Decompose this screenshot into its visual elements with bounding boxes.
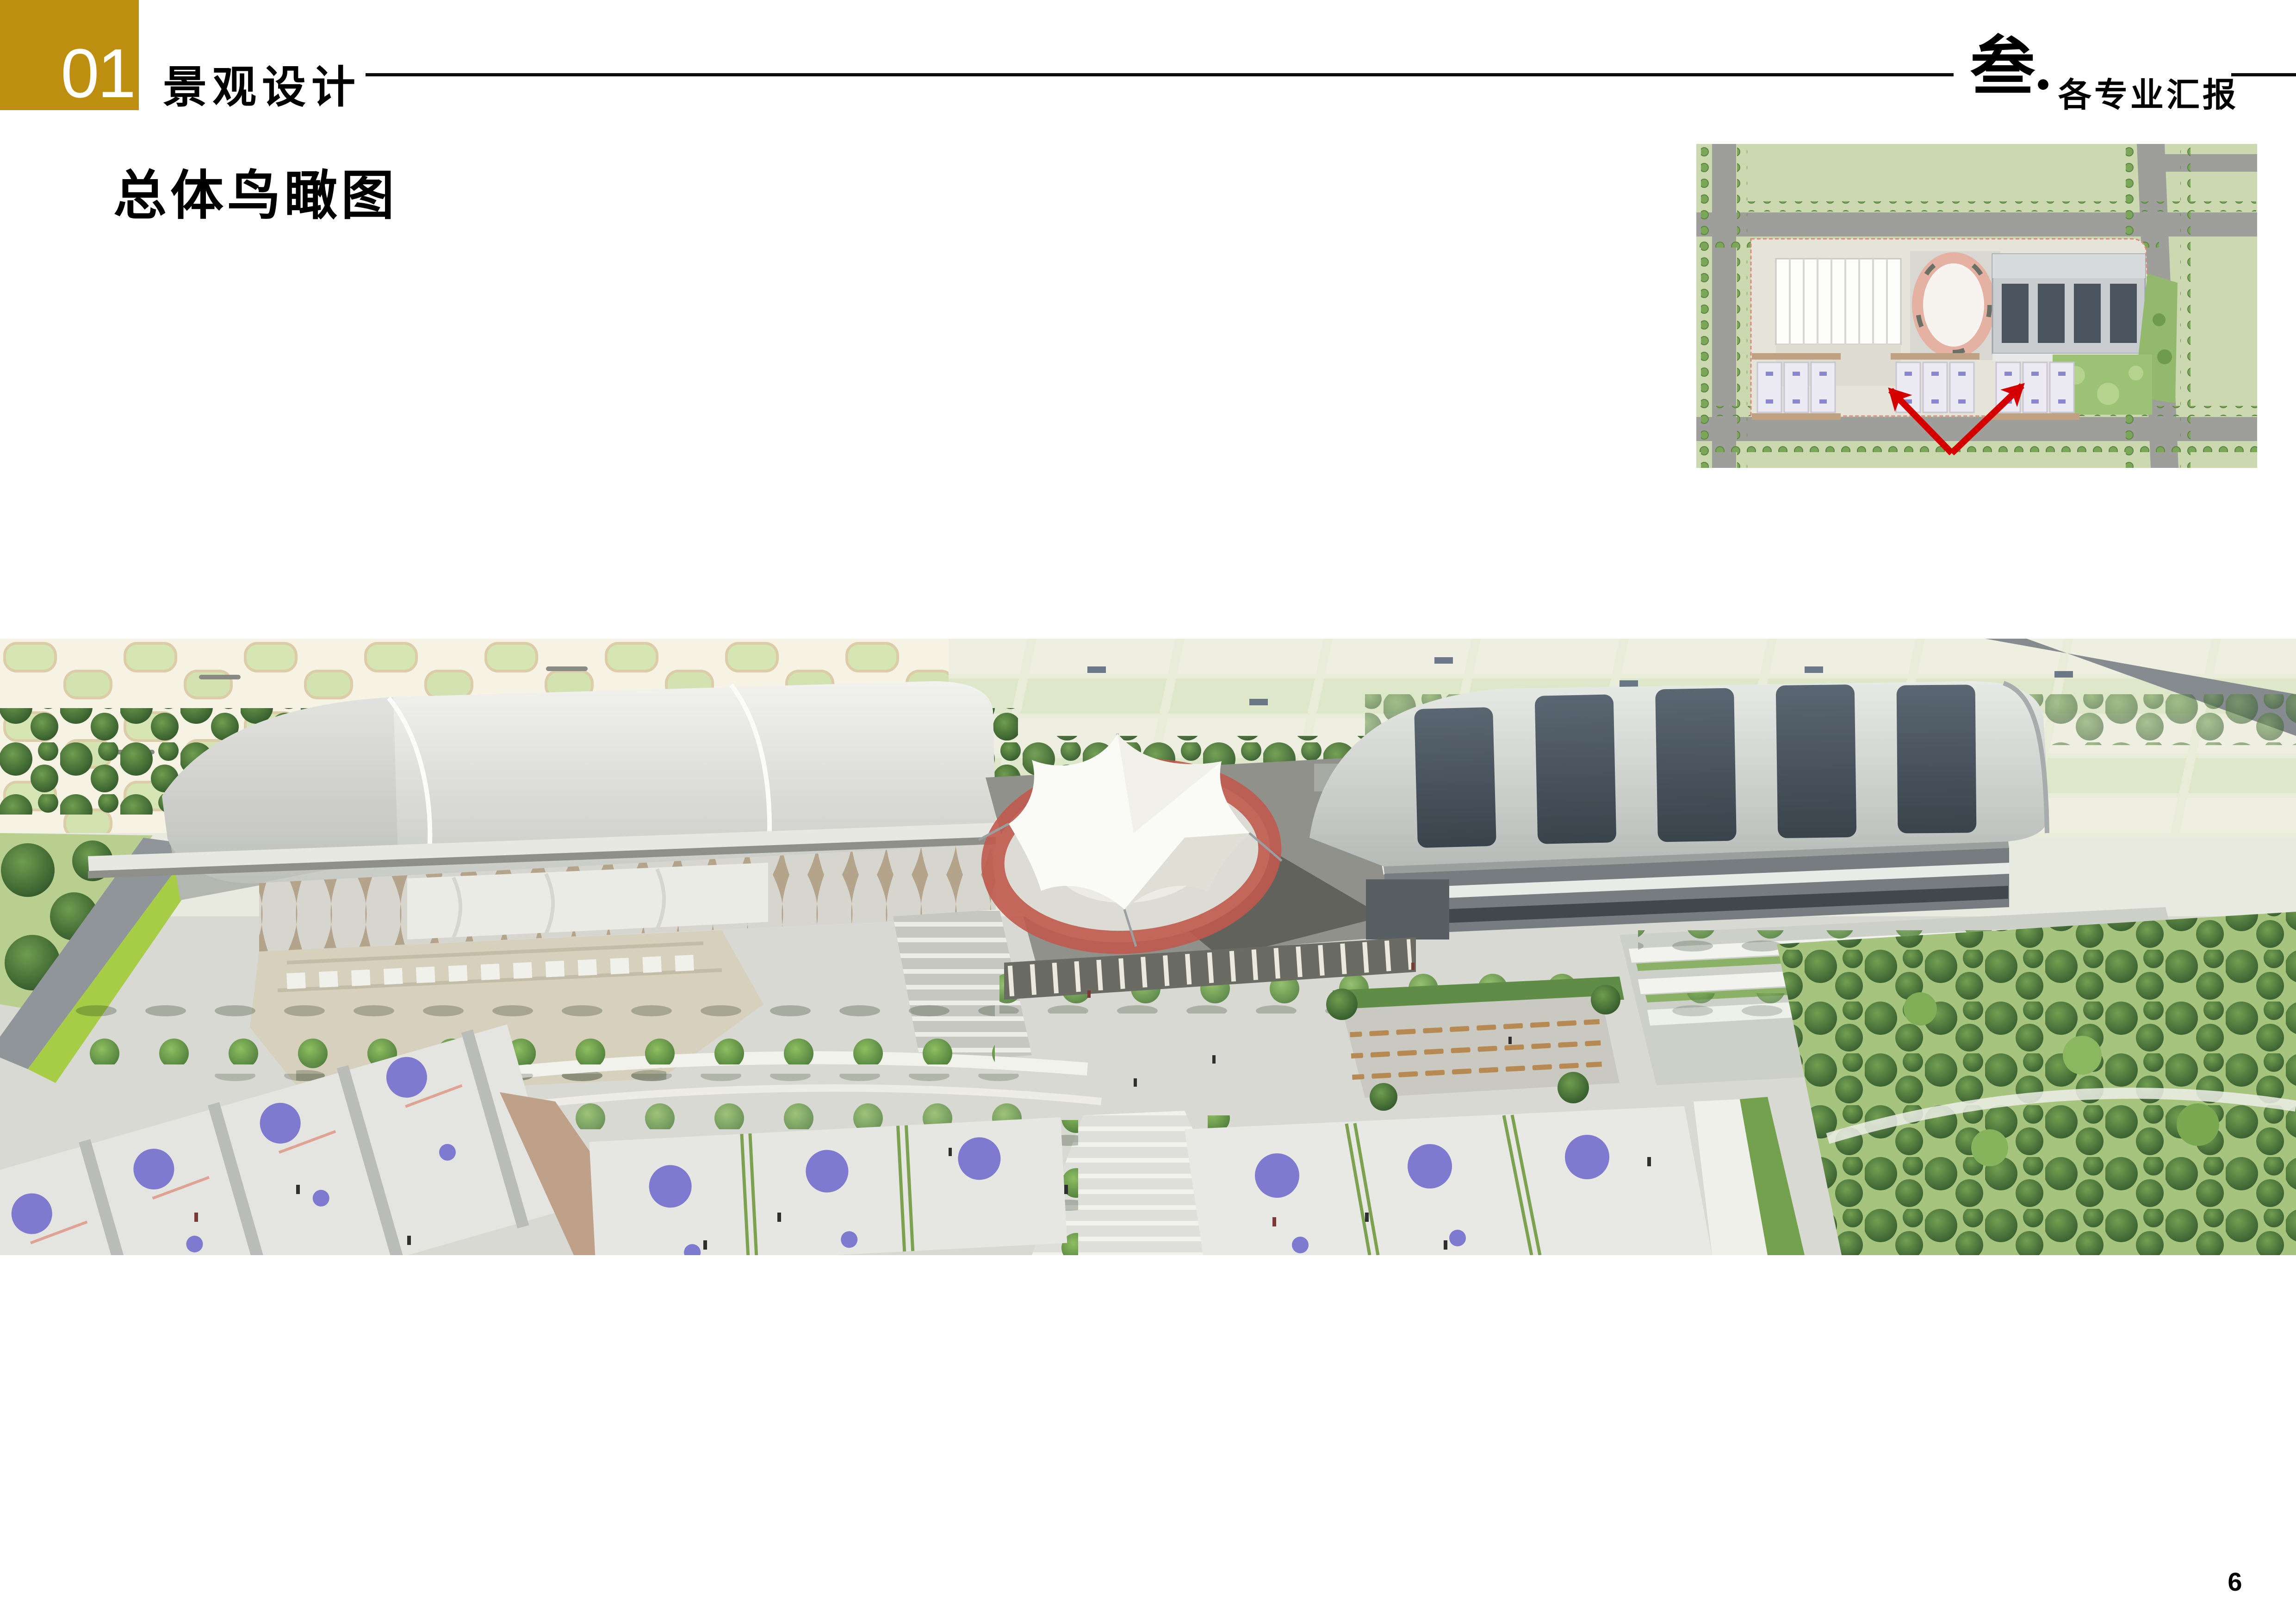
header-rule [366,73,1954,76]
render-amphitheater [1326,977,1624,1111]
chapter-number: 叁. [1970,35,2051,100]
render-right-gymnasium [1309,681,2049,940]
section-number: 01 [61,42,134,105]
site-plan-oval-plaza [1910,251,2000,360]
section-number-box: 01 [0,0,139,110]
page-title: 总体鸟瞰图 [113,153,398,230]
chapter-title: 各专业汇报 [2058,68,2239,116]
section-title: 景观设计 [163,52,361,115]
overall-aerial-render [0,639,2296,1255]
header-rule-right [2231,73,2296,76]
slide: 01 景观设计 叁. 各专业汇报 总体鸟瞰图 [0,0,2296,1624]
page-number: 6 [2216,1567,2253,1597]
render-park [1777,912,2296,1255]
site-plan-right-hall [1992,254,2145,361]
site-plan-courts [1752,353,2079,420]
site-plan-thumbnail [1696,144,2257,468]
